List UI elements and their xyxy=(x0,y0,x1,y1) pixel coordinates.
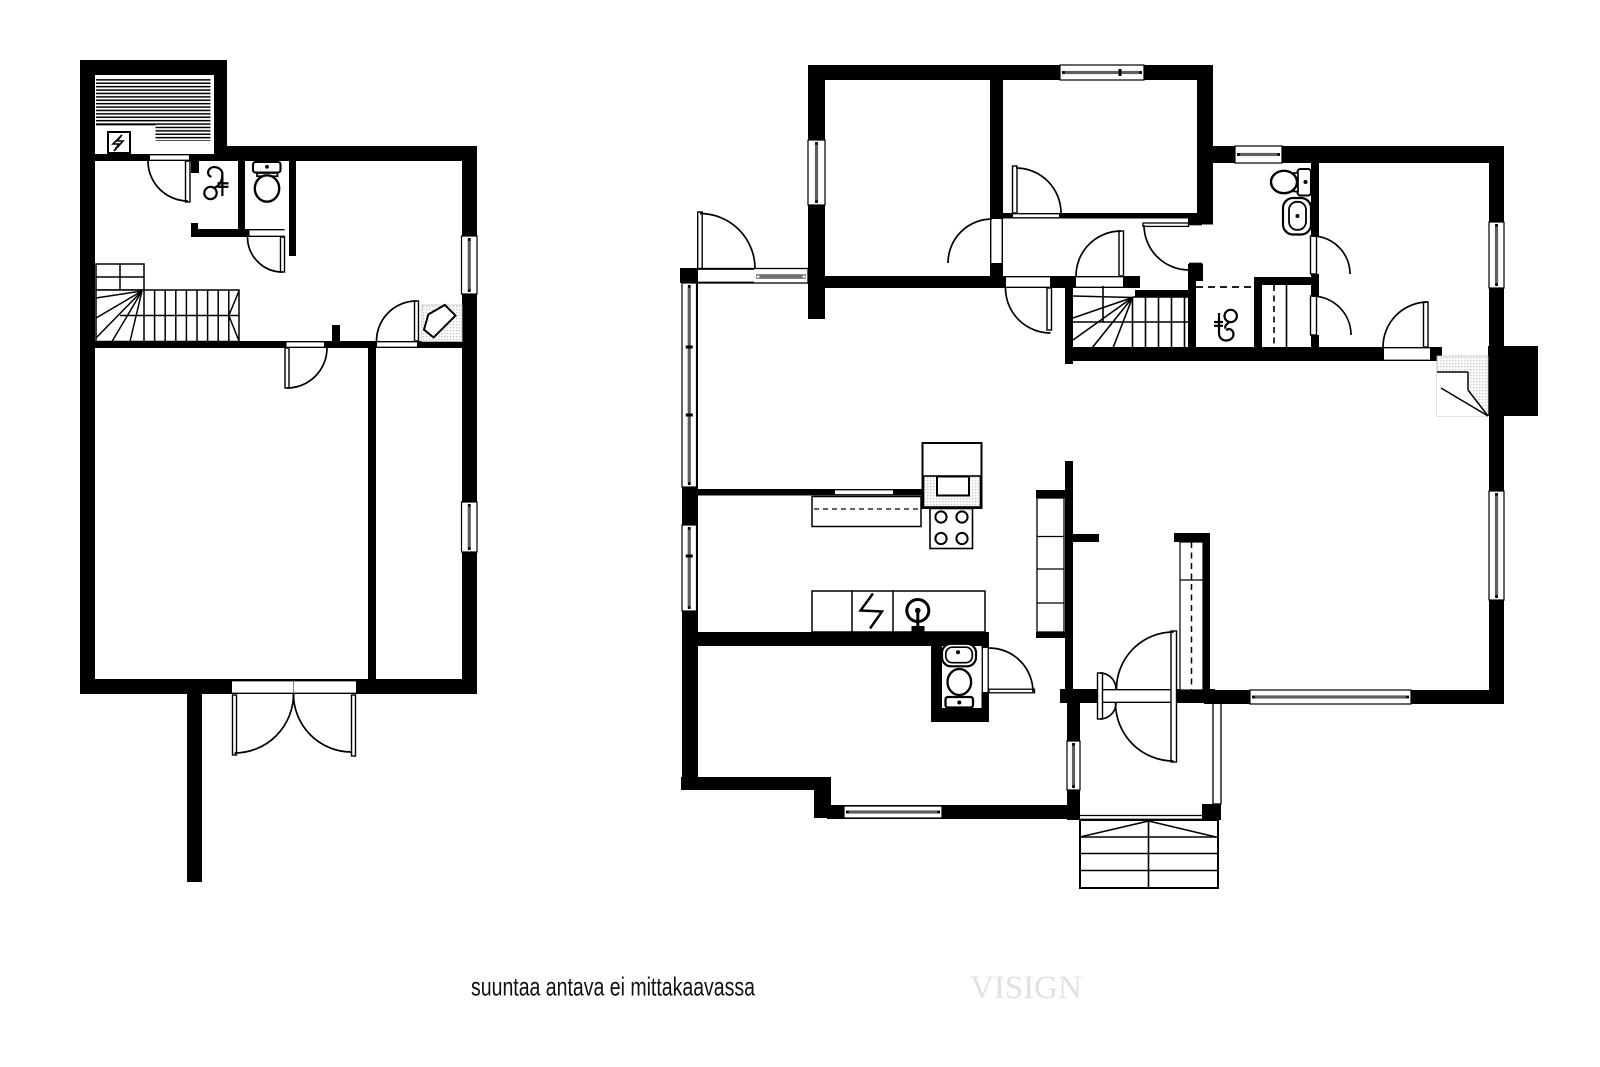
svg-text:suuntaa antava ei mittakaavass: suuntaa antava ei mittakaavassa xyxy=(471,972,755,1002)
svg-text:VISIGN: VISIGN xyxy=(970,970,1082,1006)
